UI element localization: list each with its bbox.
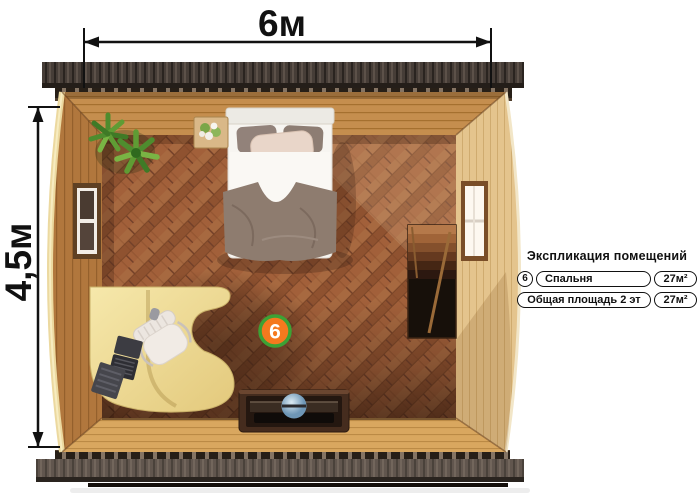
tv-console: [239, 390, 349, 432]
window-right: [461, 181, 488, 261]
legend: Экспликация помещений 6 Спальня 27м² Общ…: [517, 249, 697, 308]
legend-title: Экспликация помещений: [517, 249, 697, 263]
height-label: 4,5м: [0, 223, 39, 302]
window-left: [73, 183, 101, 259]
legend-total-name: Общая площадь 2 эт: [517, 292, 651, 308]
legend-total-area: 27м²: [654, 292, 697, 308]
staircase: [408, 225, 456, 338]
legend-room-number: 6: [517, 271, 533, 287]
floor-plan-page: 6 6м 4,5м Экспликация помещений 6 Спальн…: [0, 0, 700, 498]
legend-room-area: 27м²: [654, 271, 697, 287]
roof-bottom: [36, 450, 530, 493]
room-marker: 6: [260, 316, 290, 346]
legend-row-bedroom: 6 Спальня 27м²: [517, 271, 697, 287]
nightstand-flowers: [194, 117, 228, 148]
legend-room-name: Спальня: [536, 271, 651, 287]
legend-row-total: Общая площадь 2 эт 27м²: [517, 292, 697, 308]
room-marker-number: 6: [269, 321, 281, 344]
width-label: 6м: [258, 3, 306, 44]
